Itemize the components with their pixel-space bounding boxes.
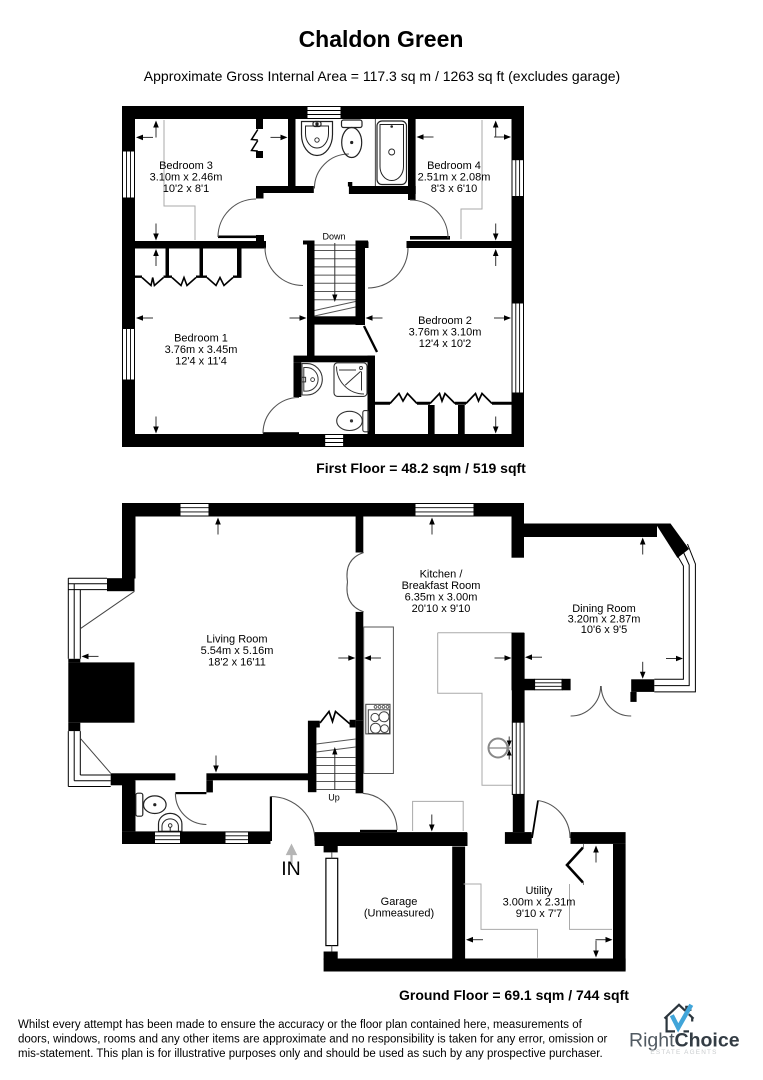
svg-text:Breakfast Room: Breakfast Room: [402, 580, 481, 592]
svg-text:Chaldon Green: Chaldon Green: [299, 26, 464, 52]
svg-text:10'2 x 8'1: 10'2 x 8'1: [163, 183, 209, 195]
svg-text:3.00m x 2.31m: 3.00m x 2.31m: [503, 897, 576, 909]
svg-text:6.35m x 3.00m: 6.35m x 3.00m: [405, 592, 478, 604]
svg-text:3.76m x 3.10m: 3.76m x 3.10m: [409, 327, 482, 339]
svg-text:(Unmeasured): (Unmeasured): [364, 908, 434, 920]
svg-text:10'6 x 9'5: 10'6 x 9'5: [581, 624, 627, 636]
svg-text:First Floor = 48.2 sqm / 519 s: First Floor = 48.2 sqm / 519 sqft: [316, 460, 526, 476]
svg-text:Down: Down: [322, 232, 345, 242]
svg-text:mis-statement. This plan is fo: mis-statement. This plan is for illustra…: [18, 1048, 603, 1060]
svg-text:Garage: Garage: [381, 896, 418, 908]
svg-text:Living Room: Living Room: [206, 634, 267, 646]
svg-text:18'2 x 16'11: 18'2 x 16'11: [208, 657, 266, 669]
svg-text:doors, windows, rooms and any: doors, windows, rooms and any other item…: [18, 1034, 608, 1046]
svg-text:Utility: Utility: [526, 885, 553, 897]
svg-text:2.51m x 2.08m: 2.51m x 2.08m: [418, 172, 491, 184]
svg-text:Up: Up: [328, 793, 340, 803]
svg-text:8'3 x 6'10: 8'3 x 6'10: [431, 183, 477, 195]
svg-text:IN: IN: [281, 858, 301, 880]
svg-text:Bedroom 2: Bedroom 2: [418, 315, 472, 327]
svg-text:Ground Floor = 69.1 sqm / 744: Ground Floor = 69.1 sqm / 744 sqft: [399, 987, 629, 1003]
svg-text:12'4 x 10'2: 12'4 x 10'2: [419, 338, 472, 350]
svg-text:Bedroom 3: Bedroom 3: [159, 160, 213, 172]
svg-text:9'10 x 7'7: 9'10 x 7'7: [516, 908, 562, 920]
svg-text:20'10 x 9'10: 20'10 x 9'10: [412, 603, 471, 615]
svg-text:Bedroom 4: Bedroom 4: [427, 160, 481, 172]
svg-text:3.10m x 2.46m: 3.10m x 2.46m: [150, 172, 223, 184]
svg-text:ESTATE AGENTS: ESTATE AGENTS: [650, 1049, 717, 1056]
svg-text:3.76m x 3.45m: 3.76m x 3.45m: [165, 344, 238, 356]
svg-text:Bedroom 1: Bedroom 1: [174, 333, 228, 345]
svg-text:12'4 x 11'4: 12'4 x 11'4: [175, 356, 227, 368]
svg-text:Kitchen /: Kitchen /: [420, 569, 464, 581]
svg-text:Approximate Gross Internal Are: Approximate Gross Internal Area = 117.3 …: [144, 68, 620, 84]
svg-text:Whilst every attempt has been: Whilst every attempt has been made to en…: [18, 1019, 583, 1031]
svg-text:5.54m x 5.16m: 5.54m x 5.16m: [201, 645, 274, 657]
